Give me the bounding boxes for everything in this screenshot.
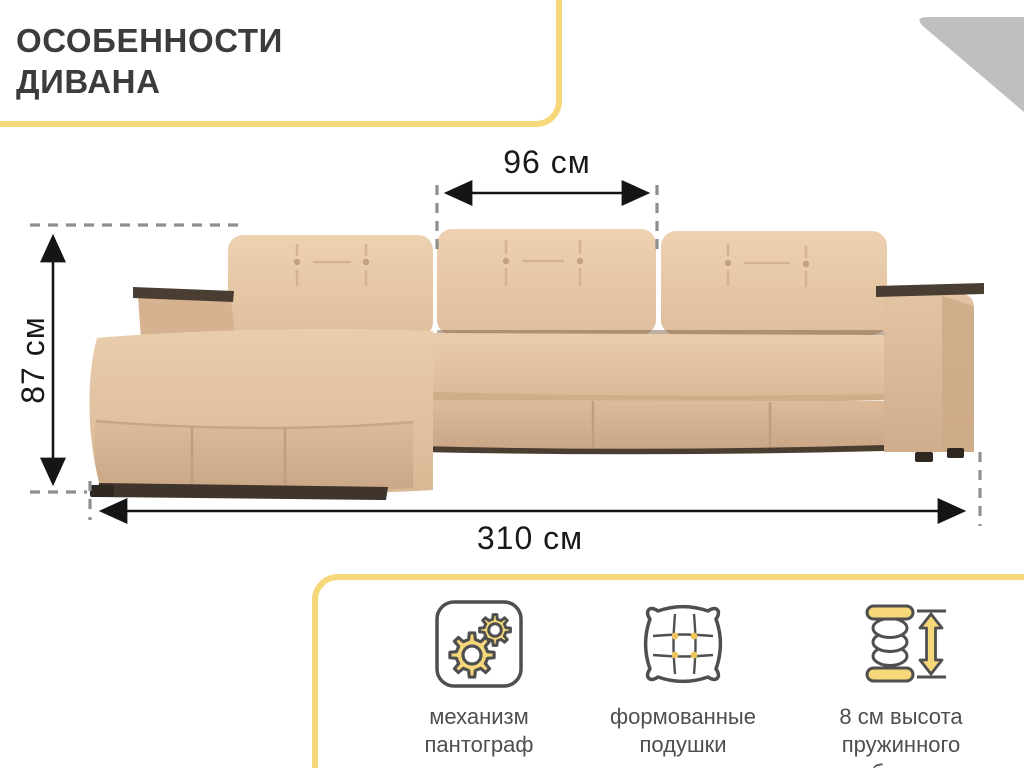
dimension-cushion-width: 96 см <box>437 144 657 181</box>
feature-label-line: пружинного <box>796 731 1006 759</box>
page-title-line1: ОСОБЕННОСТИ <box>16 20 283 61</box>
dimension-total-width: 310 см <box>330 520 730 557</box>
page-title-line2: ДИВАНА <box>16 61 283 102</box>
feature-label-line: механизм <box>374 703 584 731</box>
feature-label-line: пантограф <box>374 731 584 759</box>
feature-pantograph: механизм пантограф <box>374 598 584 759</box>
feature-label-line: 8 см высота <box>796 703 1006 731</box>
infographic-page: 96 см 87 см 310 см ОСОБЕННОСТИ ДИВАНА <box>0 0 1024 768</box>
spring-block-icon <box>855 598 947 690</box>
feature-label-line: формованные <box>578 703 788 731</box>
feature-molded-cushions: формованные подушки <box>578 598 788 759</box>
title-card: ОСОБЕННОСТИ ДИВАНА <box>0 0 562 127</box>
dimension-height: 87 см <box>3 280 63 440</box>
feature-label-line: блока <box>796 759 1006 768</box>
feature-spring-block: 8 см высота пружинного блока <box>796 598 1006 768</box>
molded-cushion-icon <box>637 598 729 690</box>
features-card: механизм пантограф формованные <box>312 574 1024 768</box>
feature-label-line: подушки <box>578 731 788 759</box>
page-title: ОСОБЕННОСТИ ДИВАНА <box>16 20 283 102</box>
pantograph-gears-icon <box>433 598 525 690</box>
